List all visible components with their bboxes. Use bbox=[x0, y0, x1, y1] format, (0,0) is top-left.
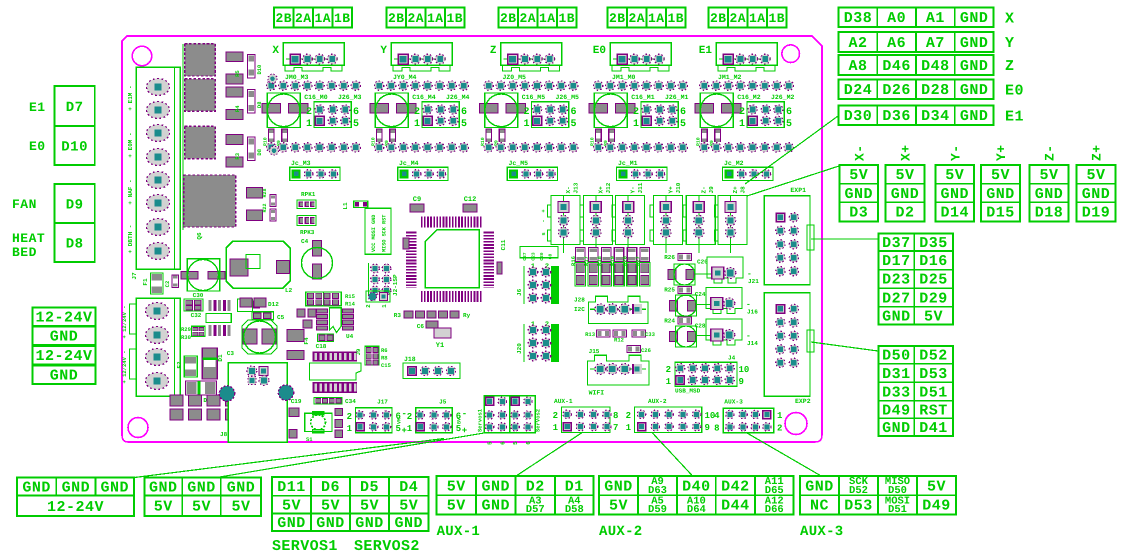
svg-text:D8: D8 bbox=[256, 101, 263, 108]
svg-text:2B: 2B bbox=[388, 11, 405, 26]
svg-text:A6: A6 bbox=[887, 35, 906, 52]
svg-text:D27: D27 bbox=[882, 290, 911, 307]
svg-text:D15: D15 bbox=[986, 205, 1015, 222]
svg-text:SerVos2: SerVos2 bbox=[535, 409, 542, 432]
svg-text:Jc_M2: Jc_M2 bbox=[724, 160, 744, 167]
svg-text:J9: J9 bbox=[355, 349, 362, 356]
svg-text:Z-: Z- bbox=[1043, 144, 1058, 161]
svg-text:Y+: Y+ bbox=[994, 144, 1009, 161]
svg-text:C11: C11 bbox=[500, 239, 507, 250]
svg-text:GND: GND bbox=[604, 478, 633, 495]
svg-text:GND: GND bbox=[960, 58, 989, 75]
svg-text:J26_M3: J26_M3 bbox=[338, 94, 362, 101]
svg-text:GND: GND bbox=[50, 329, 79, 346]
svg-text:JM0_M3: JM0_M3 bbox=[285, 74, 309, 81]
svg-text:GND: GND bbox=[805, 478, 834, 495]
svg-text:BED: BED bbox=[12, 245, 37, 260]
svg-text:D19: D19 bbox=[1082, 205, 1111, 222]
svg-text:D36: D36 bbox=[882, 108, 911, 125]
svg-text:D3: D3 bbox=[849, 205, 868, 222]
svg-text:+ E0M -: + E0M - bbox=[127, 132, 134, 157]
svg-text:5V: 5V bbox=[945, 167, 964, 184]
svg-text:9: 9 bbox=[739, 377, 744, 387]
svg-text:C16_M5: C16_M5 bbox=[522, 94, 546, 101]
svg-text:J13: J13 bbox=[573, 182, 580, 193]
svg-text:D48: D48 bbox=[921, 58, 950, 75]
svg-text:AUX-2: AUX-2 bbox=[648, 398, 667, 405]
svg-text:6: 6 bbox=[571, 107, 577, 118]
svg-text:C33: C33 bbox=[645, 331, 656, 338]
svg-text:D29: D29 bbox=[919, 290, 948, 307]
svg-text:D33: D33 bbox=[882, 384, 911, 401]
svg-text:JY0_M4: JY0_M4 bbox=[393, 74, 417, 81]
svg-text:GND: GND bbox=[50, 368, 79, 385]
svg-text:D30: D30 bbox=[844, 108, 873, 125]
svg-text:D49: D49 bbox=[922, 498, 951, 515]
svg-text:AUX-1: AUX-1 bbox=[437, 524, 481, 540]
svg-text:5V: 5V bbox=[154, 499, 173, 516]
svg-text:1: 1 bbox=[523, 119, 529, 130]
svg-text:D8: D8 bbox=[66, 236, 84, 252]
svg-text:J18: J18 bbox=[404, 356, 416, 363]
svg-text:R24: R24 bbox=[664, 318, 675, 325]
svg-text:USB_MSD: USB_MSD bbox=[675, 388, 701, 395]
svg-text:MISO SCK RST: MISO SCK RST bbox=[382, 215, 388, 252]
svg-text:12-24V: 12-24V bbox=[35, 310, 92, 327]
svg-text:7: 7 bbox=[613, 423, 618, 433]
svg-text:5V: 5V bbox=[447, 498, 466, 515]
svg-text:J16: J16 bbox=[747, 309, 758, 316]
svg-text:6: 6 bbox=[353, 107, 359, 118]
svg-text:D50: D50 bbox=[882, 348, 911, 365]
svg-text:12-24V: 12-24V bbox=[35, 348, 92, 365]
svg-text:R6: R6 bbox=[381, 347, 388, 354]
svg-text:C2: C2 bbox=[164, 281, 171, 288]
svg-text:J11: J11 bbox=[637, 182, 644, 193]
svg-text:S1: S1 bbox=[306, 436, 313, 443]
svg-text:D51: D51 bbox=[888, 504, 907, 516]
svg-text:E1: E1 bbox=[1005, 108, 1024, 125]
svg-text:J8: J8 bbox=[740, 186, 747, 194]
svg-text:D41: D41 bbox=[919, 420, 948, 437]
svg-text:D25: D25 bbox=[919, 272, 948, 289]
svg-text:C16_M4: C16_M4 bbox=[412, 94, 436, 101]
svg-text:+ DBTH -: + DBTH - bbox=[127, 225, 134, 254]
svg-text:5V: 5V bbox=[447, 478, 466, 495]
svg-text:2B: 2B bbox=[710, 11, 727, 26]
svg-text:8: 8 bbox=[613, 411, 618, 421]
svg-text:EXP2: EXP2 bbox=[795, 398, 811, 405]
svg-text:5V: 5V bbox=[1039, 167, 1058, 184]
svg-text:WIFI: WIFI bbox=[589, 390, 605, 397]
svg-text:5V: 5V bbox=[399, 497, 418, 514]
svg-text:6: 6 bbox=[680, 107, 686, 118]
svg-text:L1: L1 bbox=[342, 202, 349, 210]
svg-text:2: 2 bbox=[306, 107, 312, 118]
svg-text:5V: 5V bbox=[609, 498, 628, 515]
svg-text:RST: RST bbox=[919, 402, 948, 419]
svg-text:GND: GND bbox=[844, 186, 873, 203]
svg-text:AUX-2: AUX-2 bbox=[599, 524, 643, 540]
svg-text:D37: D37 bbox=[882, 235, 911, 252]
svg-text:Y: Y bbox=[1005, 35, 1015, 52]
svg-text:1: 1 bbox=[381, 304, 388, 308]
svg-text:GND: GND bbox=[940, 186, 969, 203]
svg-text:D23: D23 bbox=[882, 272, 911, 289]
svg-text:Z-: Z- bbox=[700, 186, 707, 193]
svg-text:2: 2 bbox=[626, 411, 631, 421]
svg-text:GND: GND bbox=[62, 479, 91, 496]
svg-text:12-24V: 12-24V bbox=[47, 499, 104, 516]
svg-text:J14: J14 bbox=[747, 340, 758, 347]
svg-text:2: 2 bbox=[633, 107, 639, 118]
svg-text:+ E1M -: + E1M - bbox=[127, 85, 134, 110]
svg-text:1A: 1A bbox=[314, 11, 331, 26]
svg-text:C16_M1: C16_M1 bbox=[631, 94, 655, 101]
svg-text:R5: R5 bbox=[234, 70, 241, 77]
svg-text:2A: 2A bbox=[519, 11, 536, 26]
svg-text:D44: D44 bbox=[721, 498, 750, 515]
svg-text:Z: Z bbox=[490, 45, 497, 57]
svg-text:C15: C15 bbox=[381, 362, 392, 369]
svg-text:D59: D59 bbox=[648, 504, 667, 516]
svg-text:VM: VM bbox=[397, 418, 403, 424]
svg-text:Y-: Y- bbox=[630, 186, 637, 193]
svg-text:2: 2 bbox=[777, 424, 782, 434]
svg-text:-: - bbox=[462, 409, 467, 419]
svg-text:2: 2 bbox=[553, 411, 558, 421]
svg-text:s: s bbox=[540, 232, 547, 235]
svg-text:SERVOS1: SERVOS1 bbox=[272, 538, 338, 555]
svg-text:Z: Z bbox=[1005, 58, 1015, 75]
svg-text:I2C: I2C bbox=[574, 306, 585, 313]
svg-text:5: 5 bbox=[571, 119, 577, 130]
svg-text:D4: D4 bbox=[399, 479, 418, 496]
svg-text:5V: 5V bbox=[927, 478, 946, 495]
svg-text:GND: GND bbox=[1082, 186, 1111, 203]
svg-text:C9: C9 bbox=[413, 196, 421, 204]
svg-text:5: 5 bbox=[461, 119, 467, 130]
svg-text:5V: 5V bbox=[896, 167, 915, 184]
svg-text:1: 1 bbox=[739, 119, 745, 130]
svg-text:J28: J28 bbox=[574, 297, 585, 304]
svg-text:D64: D64 bbox=[687, 504, 706, 516]
svg-text:AUX-3: AUX-3 bbox=[800, 524, 844, 540]
svg-text:E1: E1 bbox=[699, 45, 713, 57]
svg-text:D52: D52 bbox=[849, 485, 868, 497]
svg-text:D18: D18 bbox=[1035, 205, 1064, 222]
svg-text:D6: D6 bbox=[321, 479, 340, 496]
svg-text:+: + bbox=[462, 426, 467, 436]
svg-text:GND: GND bbox=[101, 479, 130, 496]
svg-text:C19: C19 bbox=[291, 398, 302, 405]
svg-text:D5: D5 bbox=[360, 479, 379, 496]
svg-text:D10: D10 bbox=[61, 139, 88, 155]
svg-text:J10: J10 bbox=[675, 182, 682, 193]
svg-text:5V: 5V bbox=[360, 497, 379, 514]
svg-text:2A: 2A bbox=[628, 11, 645, 26]
svg-text:GND: GND bbox=[481, 478, 510, 495]
svg-text:D66: D66 bbox=[765, 504, 784, 516]
svg-text:A2: A2 bbox=[848, 35, 867, 52]
svg-text:C6: C6 bbox=[417, 323, 425, 330]
svg-text:GND: GND bbox=[187, 479, 216, 496]
svg-text:1: 1 bbox=[407, 424, 413, 434]
svg-text:5V: 5V bbox=[849, 167, 868, 184]
svg-text:C12: C12 bbox=[464, 196, 477, 204]
svg-text:GND: GND bbox=[227, 479, 256, 496]
svg-text:D1: D1 bbox=[217, 354, 224, 362]
svg-text:EXP1: EXP1 bbox=[790, 187, 806, 194]
svg-text:GND: GND bbox=[149, 479, 178, 496]
svg-text:J26_M5: J26_M5 bbox=[556, 94, 580, 101]
svg-text:C16_M2: C16_M2 bbox=[737, 94, 761, 101]
svg-text:+ 12/24V -: + 12/24V - bbox=[121, 305, 128, 338]
svg-text:R8: R8 bbox=[381, 355, 388, 362]
svg-text:Z+: Z+ bbox=[732, 186, 739, 194]
svg-text:D24: D24 bbox=[844, 82, 873, 99]
svg-text:5V: 5V bbox=[1087, 167, 1106, 184]
svg-text:L2: L2 bbox=[285, 287, 293, 294]
svg-text:R26: R26 bbox=[664, 254, 675, 261]
svg-text:C34: C34 bbox=[345, 398, 356, 405]
svg-text:X: X bbox=[272, 45, 279, 57]
svg-text:D9: D9 bbox=[66, 197, 84, 213]
svg-text:R22: R22 bbox=[262, 203, 268, 212]
svg-text:GND: GND bbox=[22, 479, 51, 496]
svg-text:5: 5 bbox=[456, 424, 461, 434]
svg-text:GND: GND bbox=[882, 308, 911, 325]
svg-text:R3: R3 bbox=[394, 312, 402, 319]
svg-text:GND: GND bbox=[481, 498, 510, 515]
svg-text:1B: 1B bbox=[667, 11, 684, 26]
svg-text:D57: D57 bbox=[526, 504, 545, 516]
svg-text:1A: 1A bbox=[539, 11, 556, 26]
svg-text:1A: 1A bbox=[427, 11, 444, 26]
svg-text:D52: D52 bbox=[919, 348, 948, 365]
svg-text:8: 8 bbox=[714, 424, 719, 434]
svg-text:2: 2 bbox=[407, 412, 412, 422]
svg-text:A7: A7 bbox=[926, 35, 945, 52]
svg-text:D26: D26 bbox=[882, 82, 911, 99]
svg-text:R3: R3 bbox=[234, 152, 241, 159]
svg-text:RPK1: RPK1 bbox=[301, 191, 316, 198]
svg-text:D40: D40 bbox=[682, 478, 711, 495]
svg-text:D31: D31 bbox=[882, 366, 911, 383]
svg-text:C4: C4 bbox=[301, 238, 309, 245]
svg-text:J8: J8 bbox=[220, 431, 228, 438]
svg-text:GND: GND bbox=[277, 515, 306, 532]
svg-text:2B: 2B bbox=[609, 11, 626, 26]
svg-text:5V: 5V bbox=[991, 167, 1010, 184]
svg-text:C8: C8 bbox=[548, 254, 554, 260]
svg-text:C5: C5 bbox=[277, 314, 285, 321]
svg-text:1: 1 bbox=[553, 423, 559, 433]
svg-text:Y+: Y+ bbox=[667, 186, 674, 194]
svg-text:J2-1SP: J2-1SP bbox=[392, 274, 399, 296]
svg-text:D1: D1 bbox=[565, 478, 584, 495]
svg-text:GND: GND bbox=[394, 515, 423, 532]
svg-text:5V: 5V bbox=[321, 497, 340, 514]
svg-text:Jc_M3: Jc_M3 bbox=[291, 160, 311, 167]
svg-text:A8: A8 bbox=[848, 58, 867, 75]
svg-text:C18: C18 bbox=[316, 343, 327, 350]
svg-text:J12: J12 bbox=[605, 182, 612, 193]
svg-text:C32: C32 bbox=[191, 312, 202, 319]
svg-text:AUX-3: AUX-3 bbox=[724, 398, 743, 405]
svg-text:5: 5 bbox=[353, 119, 359, 130]
svg-text:1A: 1A bbox=[648, 11, 665, 26]
svg-text:5V: 5V bbox=[231, 499, 250, 516]
svg-text:6: 6 bbox=[525, 441, 532, 445]
svg-text:D38: D38 bbox=[844, 10, 873, 27]
svg-text:GND: GND bbox=[355, 515, 384, 532]
svg-text:E0: E0 bbox=[29, 139, 46, 154]
svg-text:1B: 1B bbox=[558, 11, 575, 26]
svg-text:5V: 5V bbox=[192, 499, 211, 516]
svg-text:C16_M0: C16_M0 bbox=[304, 94, 328, 101]
svg-text:JZ0_M5: JZ0_M5 bbox=[503, 74, 527, 81]
svg-text:J26_M1: J26_M1 bbox=[665, 94, 689, 101]
svg-text:R25: R25 bbox=[664, 287, 675, 294]
svg-text:BV: BV bbox=[457, 418, 463, 424]
svg-text:D58: D58 bbox=[565, 504, 584, 516]
svg-text:D2: D2 bbox=[896, 205, 915, 222]
svg-text:R13: R13 bbox=[585, 331, 596, 338]
svg-text:6: 6 bbox=[461, 107, 467, 118]
svg-text:C3: C3 bbox=[227, 350, 235, 357]
svg-text:E0: E0 bbox=[593, 45, 606, 57]
svg-text:4: 4 bbox=[714, 411, 720, 421]
svg-text:JM1_M0: JM1_M0 bbox=[612, 74, 636, 81]
svg-text:VCC MOSI GND: VCC MOSI GND bbox=[371, 215, 377, 252]
svg-text:5: 5 bbox=[680, 119, 686, 130]
svg-text:D10: D10 bbox=[256, 65, 263, 75]
svg-text:5V: 5V bbox=[282, 497, 301, 514]
svg-text:2A: 2A bbox=[295, 11, 312, 26]
svg-text:J20: J20 bbox=[516, 343, 523, 354]
svg-text:A0: A0 bbox=[887, 10, 906, 27]
svg-text:Y1: Y1 bbox=[436, 342, 444, 350]
svg-text:+ NAF -: + NAF - bbox=[127, 179, 134, 204]
svg-text:2: 2 bbox=[523, 107, 529, 118]
svg-text:2A: 2A bbox=[407, 11, 424, 26]
svg-text:1: 1 bbox=[347, 424, 353, 434]
svg-text:D7: D7 bbox=[66, 100, 84, 116]
svg-text:D53: D53 bbox=[844, 498, 873, 515]
svg-text:1B: 1B bbox=[768, 11, 785, 26]
svg-text:1B: 1B bbox=[446, 11, 463, 26]
svg-text:10: 10 bbox=[739, 365, 750, 375]
svg-text:D2: D2 bbox=[526, 478, 545, 495]
svg-text:A1: A1 bbox=[926, 10, 945, 27]
svg-text:5: 5 bbox=[396, 424, 401, 434]
svg-text:D51: D51 bbox=[919, 384, 948, 401]
svg-text:R12: R12 bbox=[614, 337, 624, 344]
svg-text:GND: GND bbox=[960, 35, 989, 52]
svg-text:D28: D28 bbox=[921, 82, 950, 99]
svg-text:Z+: Z+ bbox=[1090, 144, 1105, 161]
svg-text:1: 1 bbox=[626, 423, 632, 433]
svg-text:C26: C26 bbox=[641, 347, 651, 354]
svg-text:D16: D16 bbox=[919, 253, 948, 270]
svg-text:GND: GND bbox=[882, 420, 911, 437]
svg-text:1: 1 bbox=[633, 119, 639, 130]
svg-text:5: 5 bbox=[786, 119, 792, 130]
svg-text:2A: 2A bbox=[729, 11, 746, 26]
svg-text:X: X bbox=[1005, 10, 1015, 27]
svg-text:J4: J4 bbox=[728, 355, 736, 362]
svg-text:GND: GND bbox=[1035, 186, 1064, 203]
svg-text:GND: GND bbox=[316, 515, 345, 532]
svg-text:6: 6 bbox=[786, 107, 792, 118]
svg-text:Q6: Q6 bbox=[196, 232, 203, 240]
svg-text:2: 2 bbox=[414, 107, 420, 118]
svg-text:D17: D17 bbox=[882, 253, 911, 270]
svg-text:GND: GND bbox=[960, 82, 989, 99]
svg-text:R4: R4 bbox=[234, 105, 241, 112]
svg-text:J26_M4: J26_M4 bbox=[446, 94, 470, 101]
svg-text:D12: D12 bbox=[268, 301, 279, 308]
svg-text:2B: 2B bbox=[275, 11, 292, 26]
svg-text:E0: E0 bbox=[1005, 82, 1024, 99]
svg-text:2: 2 bbox=[739, 107, 745, 118]
svg-text:Jc_M4: Jc_M4 bbox=[399, 160, 419, 167]
svg-text:D53: D53 bbox=[919, 366, 948, 383]
svg-text:1: 1 bbox=[414, 119, 420, 130]
svg-text:R29: R29 bbox=[181, 326, 191, 333]
svg-text:NC: NC bbox=[810, 498, 829, 515]
svg-text:Y: Y bbox=[380, 45, 387, 57]
svg-text:1: 1 bbox=[777, 411, 783, 421]
svg-text:C23: C23 bbox=[531, 252, 537, 260]
svg-text:X-: X- bbox=[852, 144, 867, 161]
svg-text:D42: D42 bbox=[721, 478, 750, 495]
svg-text:D14: D14 bbox=[940, 205, 969, 222]
svg-text:X+: X+ bbox=[597, 186, 604, 194]
svg-text:X-: X- bbox=[565, 186, 572, 193]
svg-text:U4: U4 bbox=[346, 333, 354, 340]
svg-text:1B: 1B bbox=[334, 11, 351, 26]
svg-text:F2: F2 bbox=[176, 361, 183, 369]
svg-text:C30: C30 bbox=[193, 292, 204, 299]
svg-text:2: 2 bbox=[365, 304, 372, 308]
svg-text:9: 9 bbox=[705, 423, 710, 433]
svg-text:2: 2 bbox=[347, 412, 352, 422]
svg-text:J15: J15 bbox=[589, 348, 600, 355]
svg-text:5: 5 bbox=[512, 441, 519, 445]
svg-text:SERVOS2: SERVOS2 bbox=[354, 538, 420, 555]
svg-text:C20: C20 bbox=[539, 252, 545, 260]
svg-text:+ 12/24V -: + 12/24V - bbox=[121, 350, 128, 383]
svg-text:D49: D49 bbox=[882, 402, 911, 419]
svg-text:FAN: FAN bbox=[12, 197, 37, 212]
svg-text:J5: J5 bbox=[439, 399, 447, 406]
svg-text:C27: C27 bbox=[522, 252, 528, 260]
svg-text:1: 1 bbox=[666, 377, 672, 387]
svg-text:5: 5 bbox=[487, 441, 494, 445]
svg-text:Y-: Y- bbox=[948, 144, 963, 161]
svg-text:D35: D35 bbox=[919, 235, 948, 252]
svg-text:GND: GND bbox=[986, 186, 1015, 203]
svg-text:D8: D8 bbox=[256, 148, 263, 155]
svg-text:GND: GND bbox=[960, 10, 989, 27]
svg-text:R14: R14 bbox=[345, 301, 356, 308]
svg-text:RPK3: RPK3 bbox=[300, 229, 315, 236]
svg-text:HEAT: HEAT bbox=[12, 231, 45, 246]
svg-text:J17: J17 bbox=[377, 399, 388, 406]
svg-text:J9: J9 bbox=[708, 186, 715, 194]
